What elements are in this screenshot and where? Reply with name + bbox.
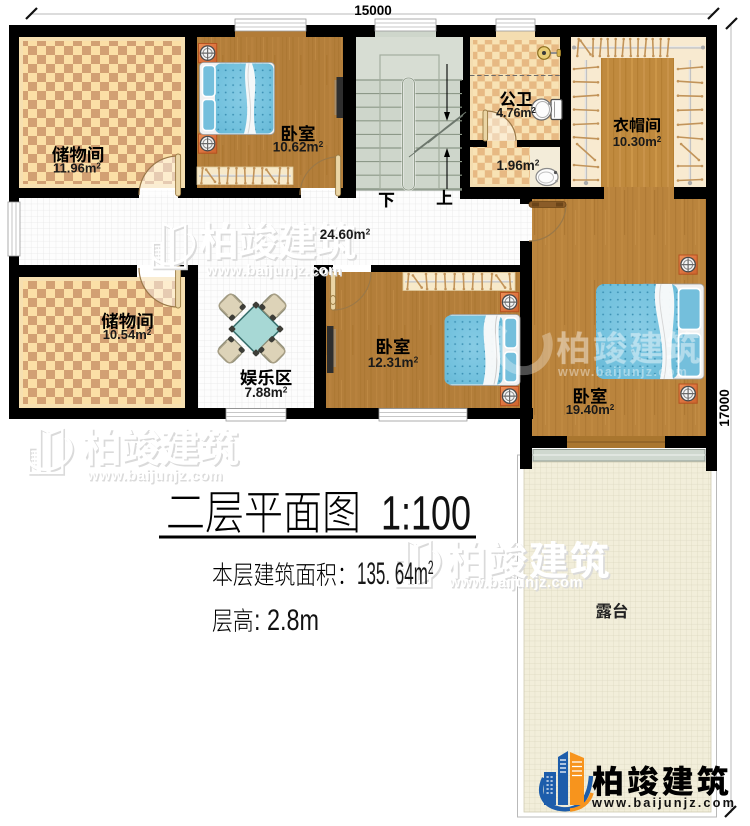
svg-text:www.baijunjz.com: www.baijunjz.com — [86, 467, 223, 484]
svg-text:11.96m2: 11.96m2 — [53, 161, 101, 176]
svg-text:1.96m2: 1.96m2 — [497, 158, 540, 173]
svg-text:12.31m2: 12.31m2 — [368, 355, 419, 370]
svg-text:135. 64m2: 135. 64m2 — [357, 557, 434, 592]
svg-text:10.54m2: 10.54m2 — [103, 327, 152, 342]
svg-text:1:100: 1:100 — [381, 487, 471, 540]
svg-text:19.40m2: 19.40m2 — [566, 402, 615, 417]
svg-text:www.baijunjz.com: www.baijunjz.com — [205, 262, 342, 279]
svg-text:www.baijunjz.com: www.baijunjz.com — [448, 575, 583, 591]
svg-text:www.baijunjz.com: www.baijunjz.com — [591, 795, 736, 810]
svg-text:15000: 15000 — [354, 3, 392, 18]
svg-text:7.88m2: 7.88m2 — [245, 385, 288, 400]
svg-text:4.76m2: 4.76m2 — [496, 106, 536, 120]
svg-text:10.30m2: 10.30m2 — [613, 134, 662, 149]
svg-text:10.62m2: 10.62m2 — [273, 139, 324, 154]
svg-text:24.60m2: 24.60m2 — [320, 227, 371, 242]
svg-text:17000: 17000 — [717, 389, 732, 427]
svg-text:: 2.8m: : 2.8m — [254, 603, 319, 636]
svg-text:www.baijunjz.com: www.baijunjz.com — [557, 365, 688, 379]
